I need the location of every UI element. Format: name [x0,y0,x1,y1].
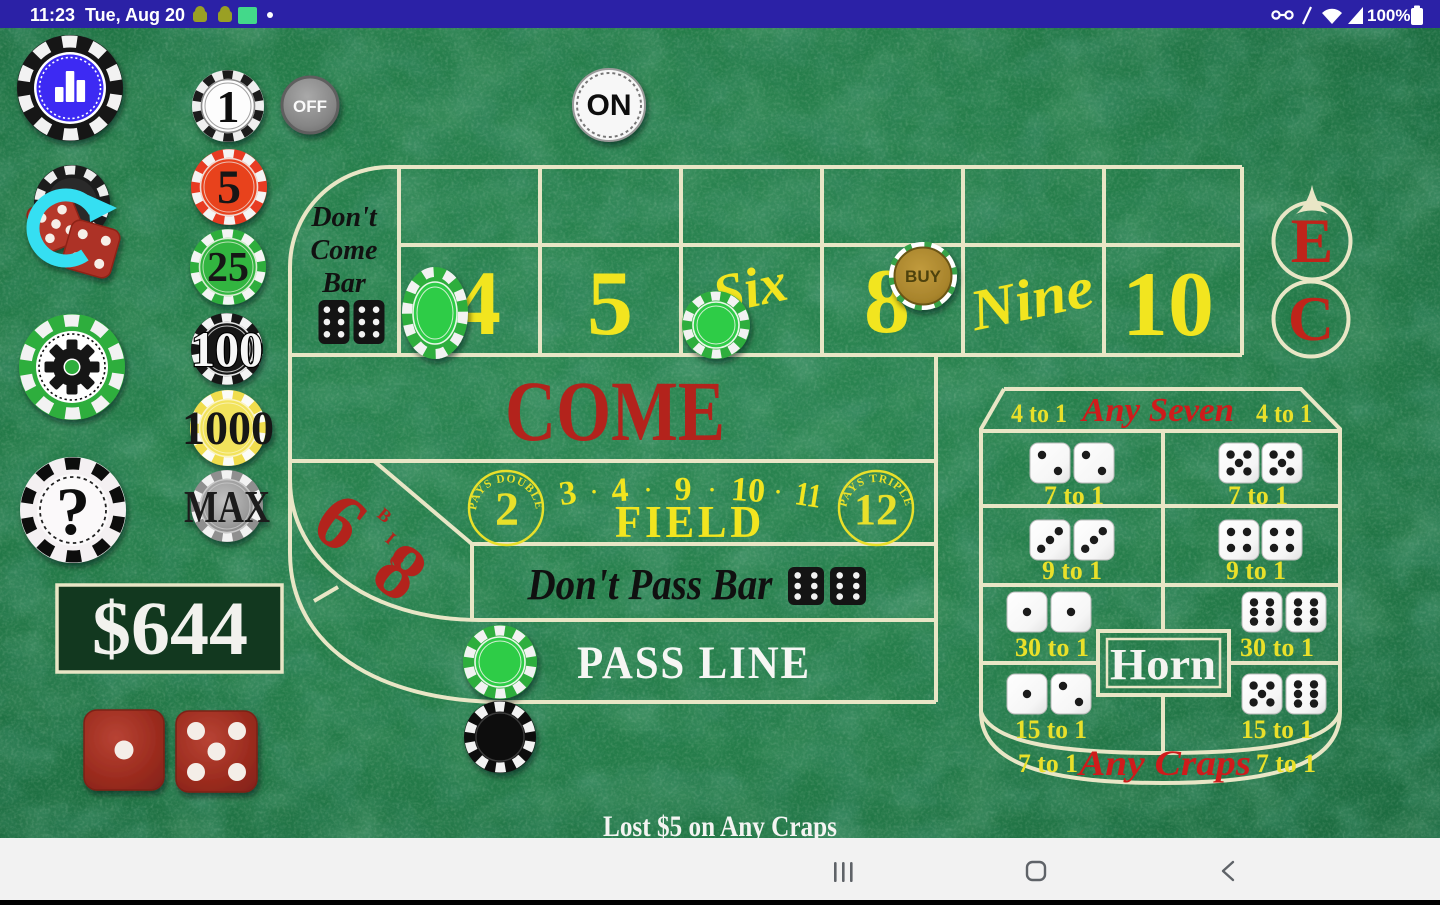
svg-text:12: 12 [854,485,898,534]
svg-text:7 to 1: 7 to 1 [1228,481,1288,510]
svg-text:$644: $644 [92,587,248,671]
svg-text:OFF: OFF [293,97,327,116]
svg-text:PASS LINE: PASS LINE [577,637,811,689]
svg-text:E: E [1291,205,1334,276]
svg-text:5: 5 [217,161,241,214]
svg-text:10: 10 [1122,253,1214,355]
svg-text:4 to 1: 4 to 1 [1256,399,1312,428]
svg-text:Horn: Horn [1110,640,1216,689]
svg-text:30 to 1: 30 to 1 [1015,633,1089,662]
svg-text:MAX: MAX [184,481,270,532]
svg-text:Come: Come [311,235,378,266]
svg-text:?: ? [56,473,90,549]
svg-text:Any Craps: Any Craps [1077,743,1251,783]
svg-text:·: · [774,479,781,504]
svg-text:7 to 1: 7 to 1 [1256,749,1316,778]
svg-text:BUY: BUY [905,267,942,286]
svg-text:4 to 1: 4 to 1 [1011,399,1067,428]
svg-text:7 to 1: 7 to 1 [1044,481,1104,510]
svg-text:100: 100 [191,321,263,377]
svg-text:Any Seven: Any Seven [1080,392,1234,429]
svg-text:7 to 1: 7 to 1 [1018,749,1078,778]
svg-text:COME: COME [505,363,725,459]
svg-text:100%: 100% [1367,6,1410,25]
svg-text:Tue, Aug 20: Tue, Aug 20 [85,5,185,25]
svg-text:11:23: 11:23 [30,5,75,25]
svg-text:ON: ON [587,89,632,122]
svg-text:2: 2 [495,483,519,536]
svg-text:15 to 1: 15 to 1 [1015,715,1087,744]
svg-text:5: 5 [587,252,633,354]
svg-text:15 to 1: 15 to 1 [1241,715,1313,744]
svg-text:Don't: Don't [310,202,378,233]
svg-text:1000: 1000 [182,402,274,455]
svg-text:Bar: Bar [321,268,367,299]
svg-text:FIELD: FIELD [615,496,765,547]
svg-text:1: 1 [217,81,240,132]
svg-text:30 to 1: 30 to 1 [1240,633,1314,662]
svg-text:·: · [590,479,597,504]
svg-text:Don't Pass Bar: Don't Pass Bar [527,560,774,609]
svg-text:C: C [1288,283,1334,354]
svg-text:25: 25 [207,245,249,291]
